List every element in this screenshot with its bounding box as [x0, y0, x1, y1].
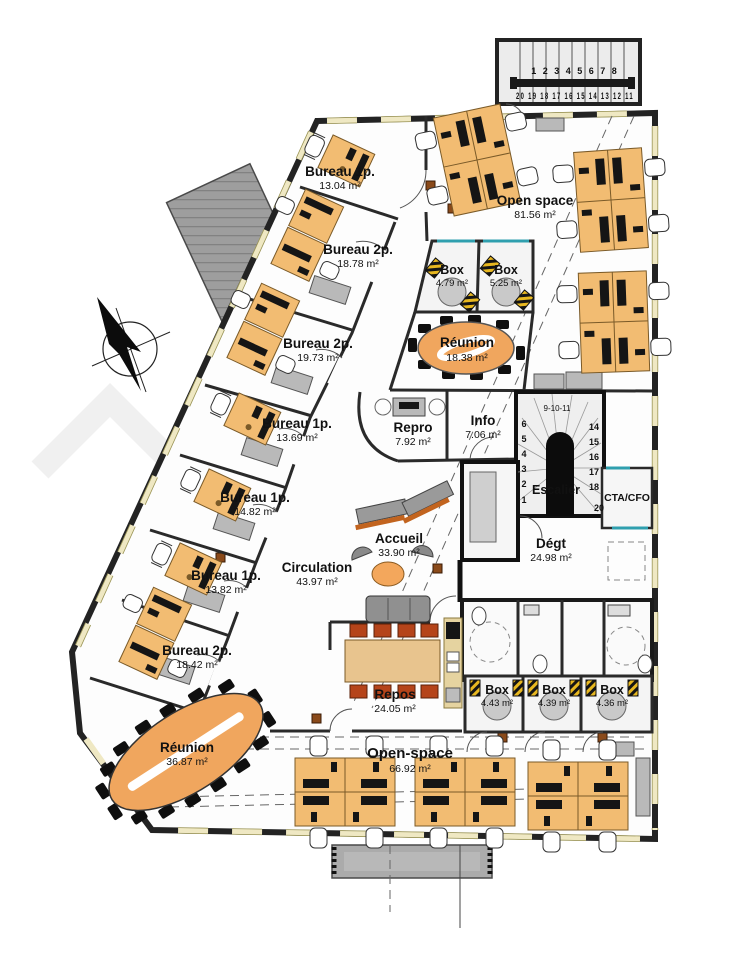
svg-text:13.82 m²: 13.82 m²	[205, 584, 247, 596]
room-label-cta-cfo: CTA/CFO	[604, 492, 650, 504]
svg-text:33.90 m²: 33.90 m²	[378, 547, 420, 559]
room-label-box-2: Box	[494, 263, 518, 277]
room-label-accueil: Accueil	[375, 531, 423, 546]
stair-number: 15	[589, 437, 599, 447]
room-label-bureau-6: Bureau 1p.	[191, 568, 261, 583]
room-label-open-space-top: Open space	[497, 193, 574, 208]
room-label-bureau-1: Bureau 1p.	[305, 164, 375, 179]
svg-text:66.92 m²: 66.92 m²	[389, 763, 431, 775]
entrance-canopy	[332, 845, 492, 928]
stair-number: 2	[521, 479, 526, 489]
svg-text:4.79 m²: 4.79 m²	[436, 278, 468, 289]
room-label-box-1: Box	[440, 263, 464, 277]
stair-number: 1	[521, 495, 526, 505]
svg-text:13.69 m²: 13.69 m²	[276, 432, 318, 444]
svg-text:4.43 m²: 4.43 m²	[481, 698, 513, 709]
room-label-box-4: Box	[542, 683, 566, 697]
room-label-bureau-3: Bureau 2p.	[283, 336, 353, 351]
stair-number: 4	[521, 449, 526, 459]
stair-number: 17	[589, 467, 599, 477]
svg-text:7.06 m²: 7.06 m²	[465, 429, 501, 441]
room-label-info: Info	[471, 413, 496, 428]
north-arrow-icon	[92, 297, 170, 392]
svg-text:24.98 m²: 24.98 m²	[530, 552, 572, 564]
svg-text:43.97 m²: 43.97 m²	[296, 576, 338, 588]
svg-text:4.39 m²: 4.39 m²	[538, 698, 570, 709]
svg-text:81.56 m²: 81.56 m²	[514, 209, 556, 221]
stair-number: 20	[594, 503, 604, 513]
stair-number: 5	[521, 434, 526, 444]
stair-number: 3	[521, 464, 526, 474]
stair-number: 14	[589, 422, 599, 432]
room-label-circulation: Circulation	[282, 560, 353, 575]
stair-arc-label: 9-10-11	[544, 404, 572, 413]
exterior-stair-numbers-down: 20 19 18 17 16 15 14 13 12 11	[516, 91, 634, 101]
floor-plan-canvas: 1 2 3 4 5 6 7 8 20 19 18 17 16 15 14 13 …	[0, 0, 744, 960]
svg-text:5.25 m²: 5.25 m²	[490, 278, 522, 289]
room-label-bureau-5: Bureau 1p.	[220, 490, 290, 505]
room-label-box-3: Box	[485, 683, 509, 697]
svg-text:19.73 m²: 19.73 m²	[297, 352, 339, 364]
room-label-box-5: Box	[600, 683, 624, 697]
room-label-degt: Dégt	[536, 536, 567, 551]
room-label-repos: Repos	[374, 687, 415, 702]
stair-number: 18	[589, 482, 599, 492]
svg-text:18.42 m²: 18.42 m²	[176, 659, 218, 671]
svg-text:24.05 m²: 24.05 m²	[374, 703, 416, 715]
svg-text:14.82 m²: 14.82 m²	[234, 506, 276, 518]
stair-number: 16	[589, 452, 599, 462]
svg-text:4.36 m²: 4.36 m²	[596, 698, 628, 709]
svg-text:13.04 m²: 13.04 m²	[319, 180, 361, 192]
exterior-stair-numbers-up: 1 2 3 4 5 6 7 8	[531, 66, 619, 76]
exterior-stair: 1 2 3 4 5 6 7 8 20 19 18 17 16 15 14 13 …	[497, 40, 640, 122]
room-label-bureau-2: Bureau 2p.	[323, 242, 393, 257]
room-label-open-space-bottom: Open-space	[367, 745, 453, 762]
stair-number: 6	[521, 419, 526, 429]
svg-text:7.92 m²: 7.92 m²	[395, 436, 431, 448]
room-label-escalier: Escalier	[532, 483, 580, 497]
svg-text:36.87 m²: 36.87 m²	[166, 756, 208, 768]
svg-text:18.78 m²: 18.78 m²	[337, 258, 379, 270]
svg-text:18.38 m²: 18.38 m²	[446, 352, 488, 364]
room-label-bureau-4: Bureau 1p.	[262, 416, 332, 431]
room-label-repro: Repro	[393, 420, 432, 435]
room-label-reunion-small: Réunion	[440, 335, 494, 350]
room-label-reunion-large: Réunion	[160, 740, 214, 755]
floor-plan-drawing: 1 2 3 4 5 6 7 8 20 19 18 17 16 15 14 13 …	[0, 0, 744, 960]
room-label-bureau-7: Bureau 2p.	[162, 643, 232, 658]
